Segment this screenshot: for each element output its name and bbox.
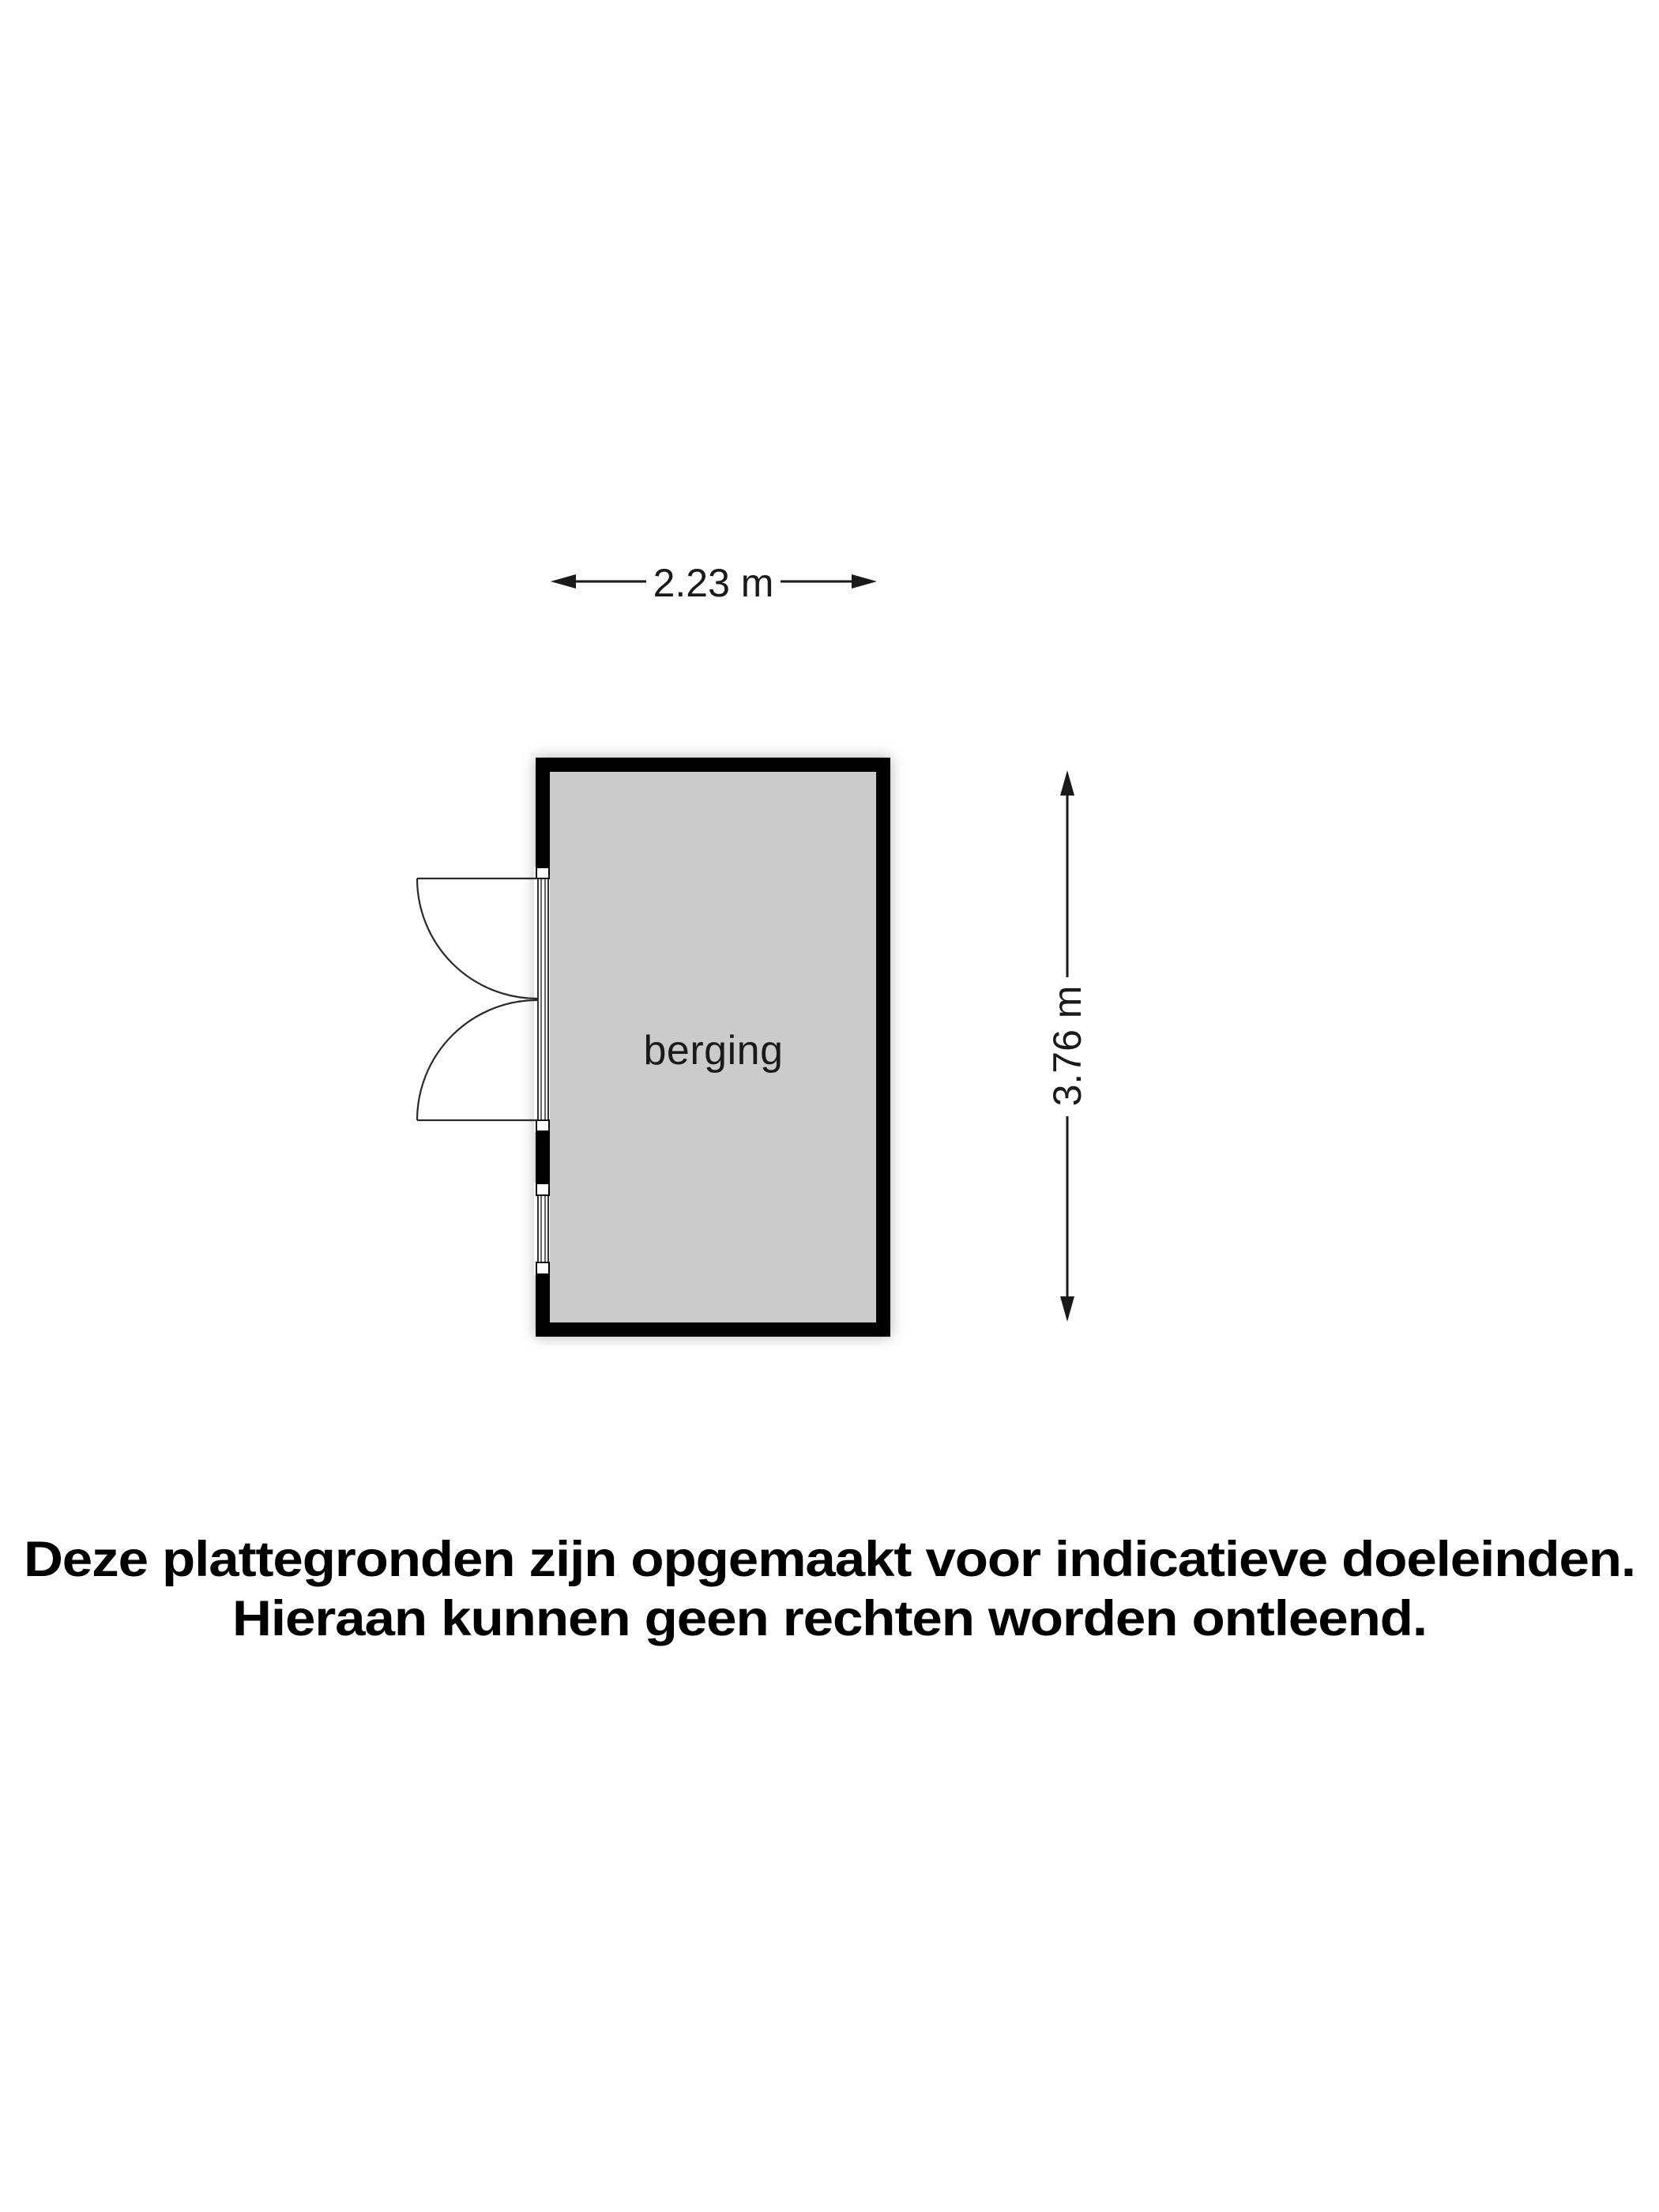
room-label: berging xyxy=(644,1028,784,1074)
width-dim-label: 2.23 m xyxy=(653,561,774,605)
disclaimer: Deze plattegronden zijn opgemaakt voor i… xyxy=(24,1532,1635,1646)
room-berging: berging xyxy=(417,765,883,1330)
disclaimer-line2: Hieraan kunnen geen rechten worden ontle… xyxy=(232,1591,1427,1646)
height-dim-arrow-top xyxy=(1060,770,1074,796)
door-swing-arc-top xyxy=(417,878,537,999)
window-frame xyxy=(538,1195,548,1262)
door-swing-arc-bottom xyxy=(417,1000,537,1120)
disclaimer-line1: Deze plattegronden zijn opgemaakt voor i… xyxy=(24,1532,1635,1587)
door-jamb-top xyxy=(536,867,549,878)
floor-plan-canvas: berging 2.23 m 3.76 m Deze plattegronden… xyxy=(0,0,1659,2212)
width-dimension: 2.23 m xyxy=(551,561,877,605)
height-dim-label: 3.76 m xyxy=(1045,986,1089,1107)
door-jamb-bottom xyxy=(536,1120,549,1131)
width-dim-arrow-left xyxy=(551,574,576,589)
width-dim-arrow-right xyxy=(852,574,877,589)
window-jamb-bottom xyxy=(536,1262,549,1274)
window-jamb-top xyxy=(536,1183,549,1195)
door-frame xyxy=(538,878,548,1120)
height-dimension: 3.76 m xyxy=(1045,770,1089,1322)
height-dim-arrow-bottom xyxy=(1060,1296,1074,1322)
